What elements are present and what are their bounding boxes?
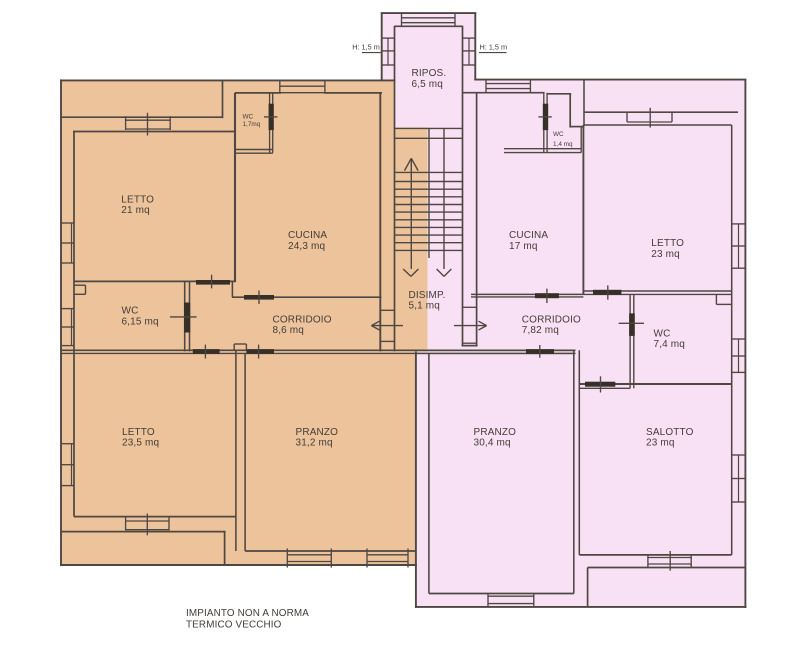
svg-text:17 mq: 17 mq	[509, 241, 538, 252]
svg-text:TERMICO VECCHIO: TERMICO VECCHIO	[186, 620, 282, 631]
svg-text:31,2 mq: 31,2 mq	[296, 438, 333, 449]
svg-text:24,3 mq: 24,3 mq	[288, 241, 325, 252]
svg-text:23,5 mq: 23,5 mq	[122, 438, 159, 449]
svg-text:23 mq: 23 mq	[651, 249, 680, 260]
svg-text:WC: WC	[553, 131, 564, 138]
svg-text:RIPOS.: RIPOS.	[412, 68, 447, 79]
svg-text:CUCINA: CUCINA	[288, 230, 327, 241]
svg-text:LETTO: LETTO	[122, 427, 155, 438]
svg-text:WC: WC	[122, 306, 139, 317]
svg-text:LETTO: LETTO	[121, 194, 154, 205]
svg-text:23 mq: 23 mq	[646, 438, 675, 449]
svg-text:6,15 mq: 6,15 mq	[122, 316, 159, 327]
svg-text:LETTO: LETTO	[651, 238, 684, 249]
svg-text:6,5 mq: 6,5 mq	[412, 79, 443, 90]
svg-text:30,4 mq: 30,4 mq	[474, 438, 511, 449]
svg-text:5,1 mq: 5,1 mq	[409, 301, 440, 312]
svg-text:8,6 mq: 8,6 mq	[273, 325, 304, 336]
svg-text:WC: WC	[243, 113, 254, 120]
svg-text:CORRIDOIO: CORRIDOIO	[522, 314, 581, 325]
svg-text:7,82 mq: 7,82 mq	[522, 325, 559, 336]
svg-text:1,4 mq: 1,4 mq	[553, 141, 573, 148]
svg-text:CORRIDOIO: CORRIDOIO	[273, 314, 332, 325]
svg-text:CUCINA: CUCINA	[509, 230, 548, 241]
svg-text:IMPIANTO NON A NORMA: IMPIANTO NON A NORMA	[186, 608, 309, 619]
svg-text:DISIMP.: DISIMP.	[409, 290, 446, 301]
svg-text:7,4 mq: 7,4 mq	[654, 339, 685, 350]
svg-text:H: 1,5 m: H: 1,5 m	[480, 43, 508, 52]
svg-text:1,7mq: 1,7mq	[243, 121, 261, 128]
svg-text:21 mq: 21 mq	[121, 205, 150, 216]
svg-text:PRANZO: PRANZO	[474, 427, 517, 438]
svg-text:WC: WC	[654, 328, 671, 339]
svg-text:PRANZO: PRANZO	[296, 427, 339, 438]
svg-text:H: 1,5 m: H: 1,5 m	[352, 43, 380, 52]
svg-text:SALOTTO: SALOTTO	[646, 427, 694, 438]
